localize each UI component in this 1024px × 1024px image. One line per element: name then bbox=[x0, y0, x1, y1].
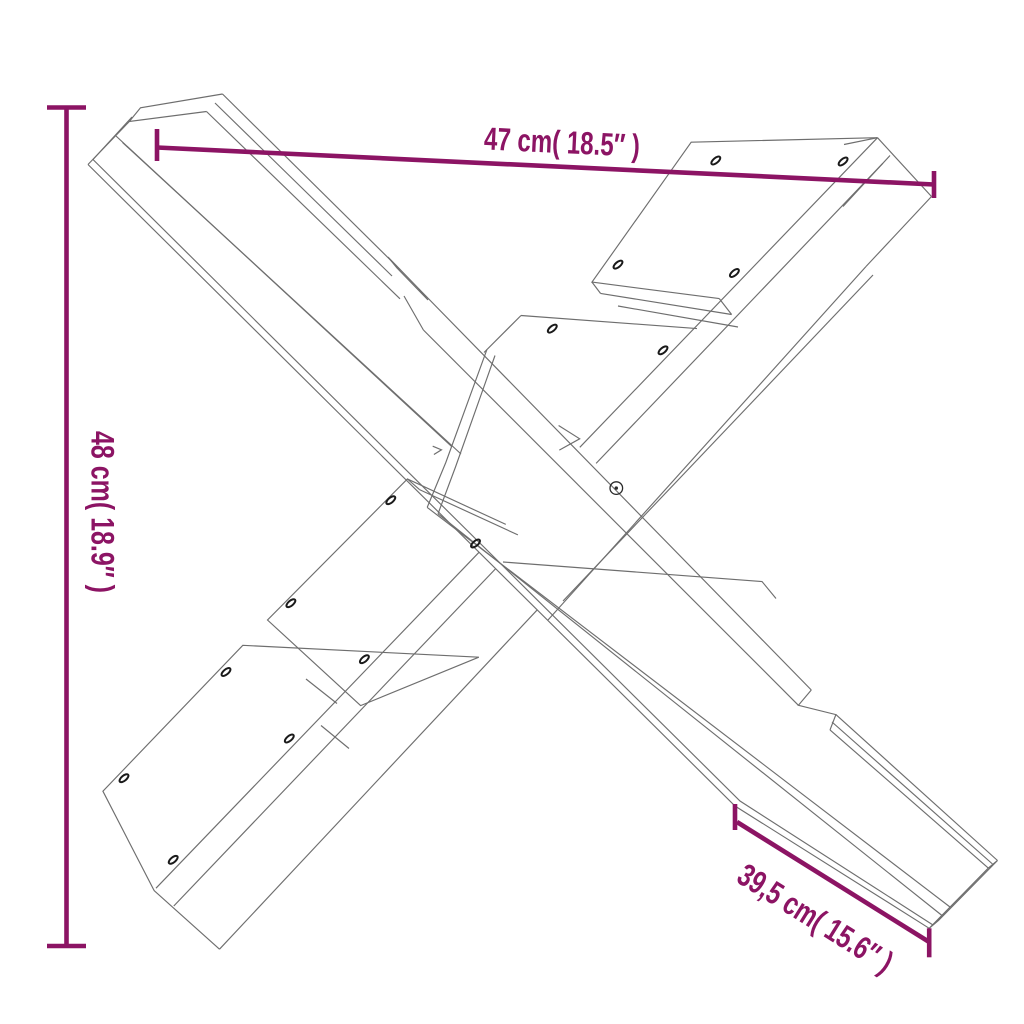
svg-text:47 cm( 18.5″ ): 47 cm( 18.5″ ) bbox=[483, 120, 641, 163]
svg-text:39,5 cm( 15.6″ ): 39,5 cm( 15.6″ ) bbox=[731, 856, 899, 980]
svg-text:48 cm( 18.9″ ): 48 cm( 18.9″ ) bbox=[85, 431, 121, 593]
